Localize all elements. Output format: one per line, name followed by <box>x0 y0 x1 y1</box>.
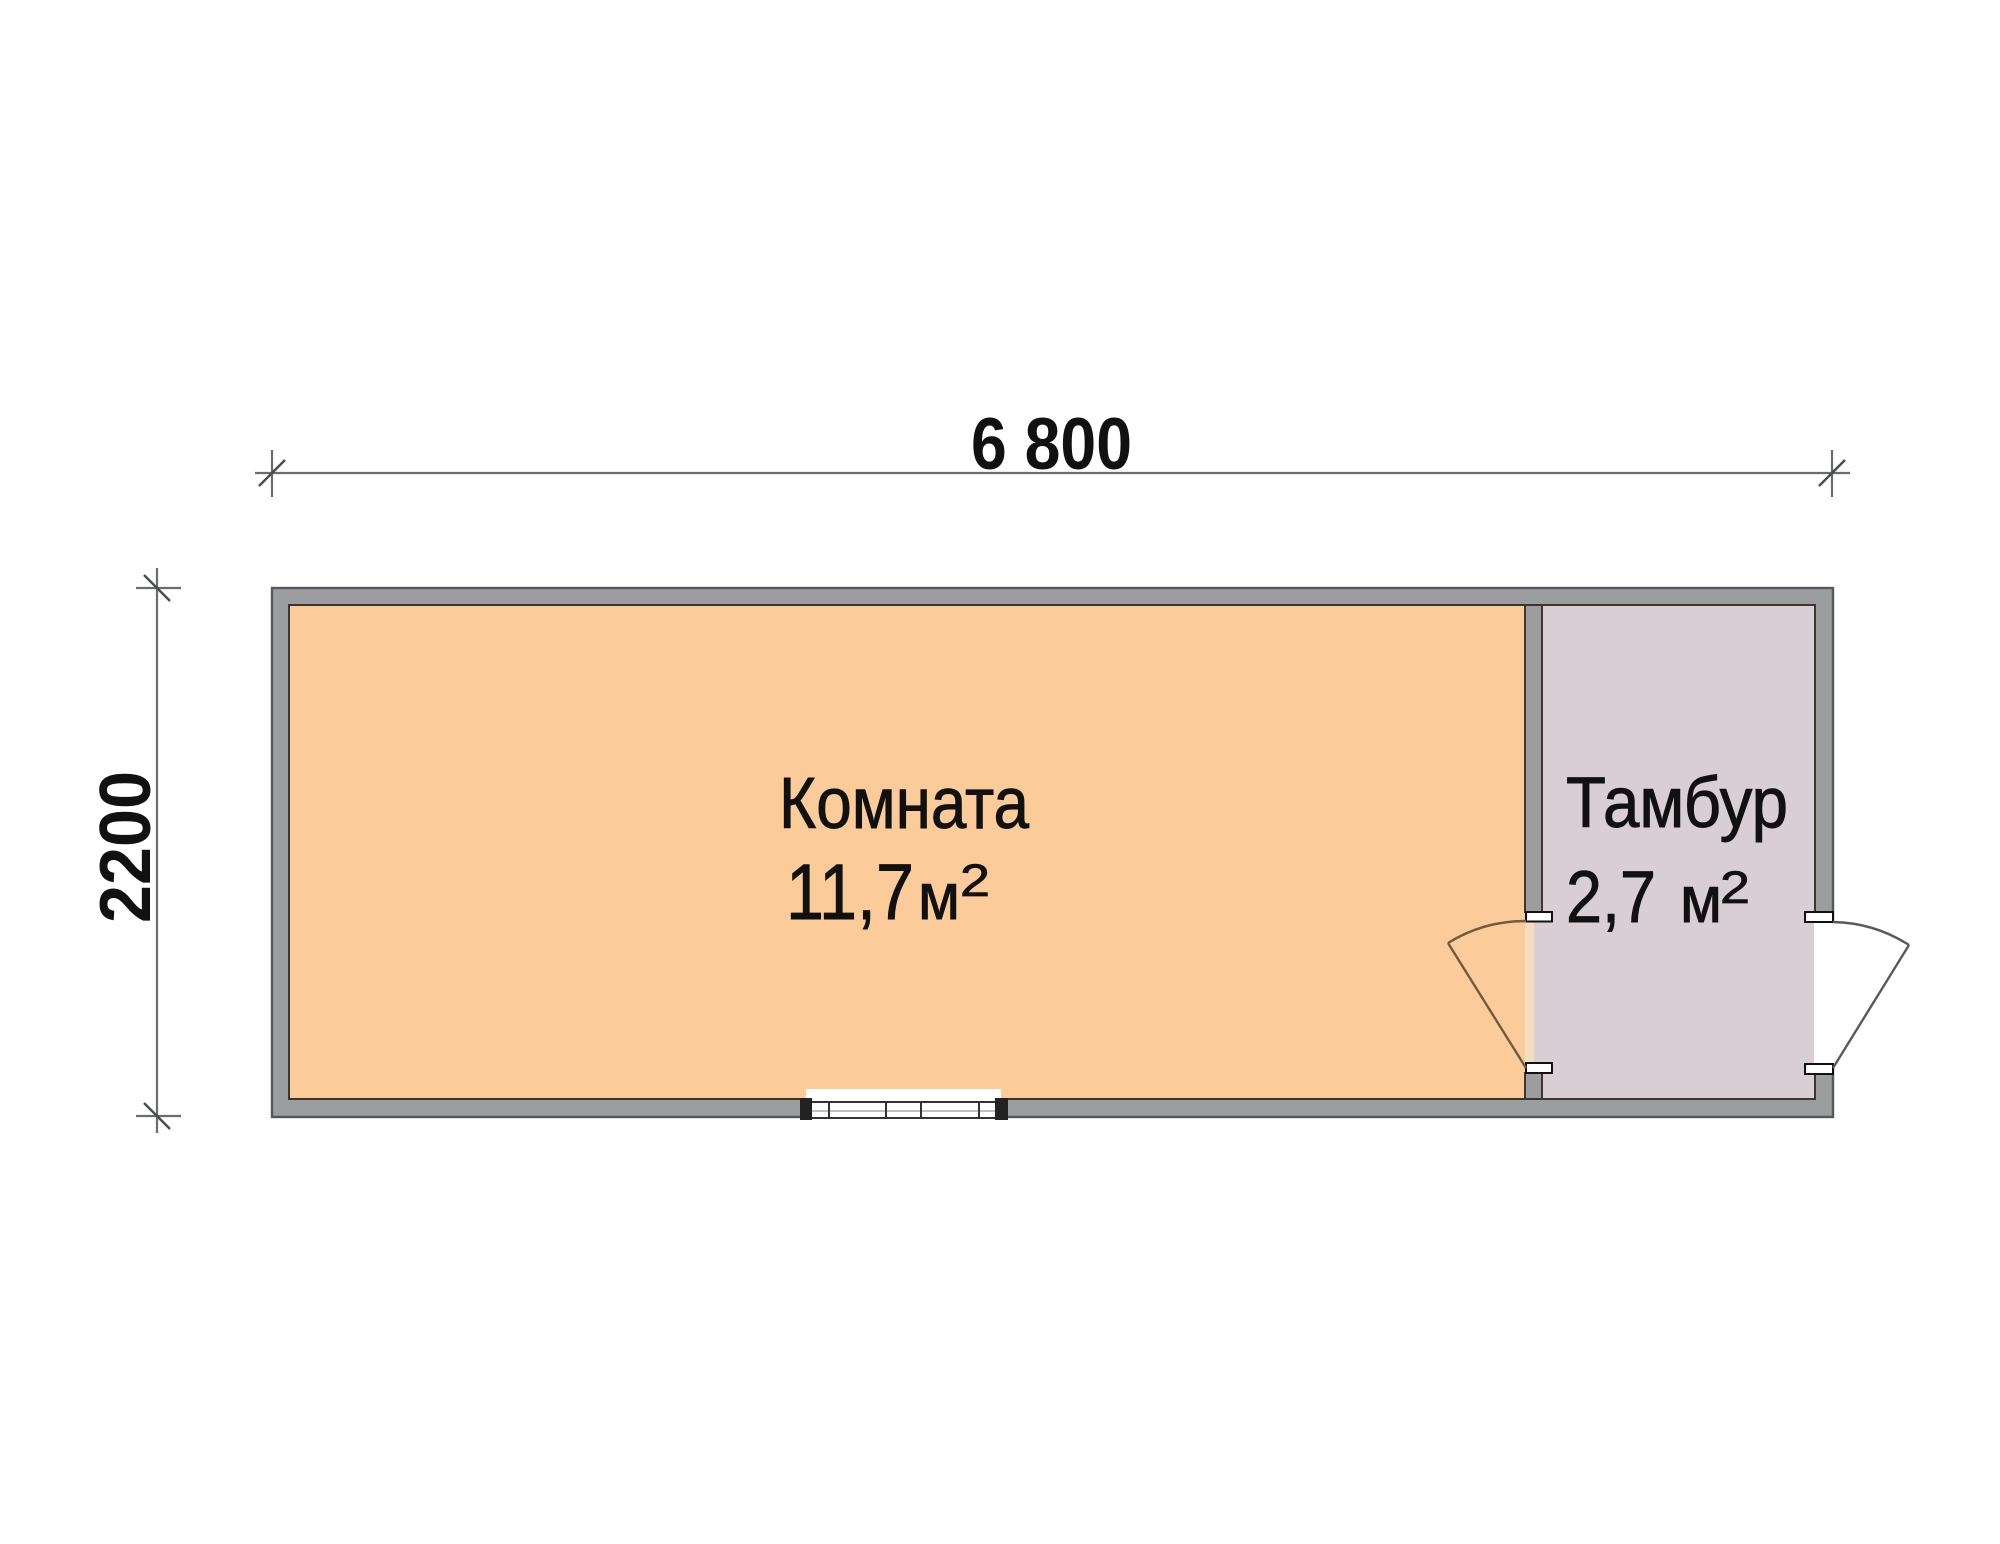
svg-text:2: 2 <box>960 855 990 906</box>
svg-text:2200: 2200 <box>86 771 166 923</box>
svg-text:11,7: 11,7 <box>786 847 914 936</box>
svg-text:м: м <box>1680 862 1722 936</box>
svg-text:2,7: 2,7 <box>1566 857 1656 938</box>
svg-text:2: 2 <box>1720 862 1750 913</box>
svg-text:м: м <box>918 859 960 933</box>
svg-text:6 800: 6 800 <box>971 404 1132 485</box>
svg-text:Тамбур: Тамбур <box>1566 764 1788 843</box>
svg-text:Комната: Комната <box>779 764 1030 844</box>
